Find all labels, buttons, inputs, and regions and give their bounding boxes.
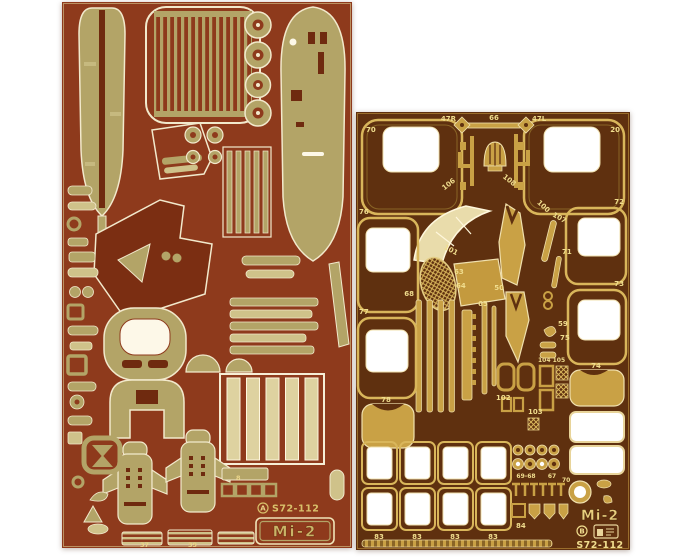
part-number-label: 64 bbox=[456, 282, 466, 290]
strip-bundle-part bbox=[223, 147, 271, 237]
part-number-label: 84 bbox=[516, 522, 526, 530]
part-number-label: 65 bbox=[478, 300, 488, 308]
brand-mark: B bbox=[579, 528, 584, 536]
part-number-label: 67 bbox=[548, 473, 556, 480]
cowl-ring-part bbox=[104, 308, 186, 380]
part-number-label: 75 bbox=[560, 334, 570, 342]
part-number-label: 103 bbox=[528, 408, 543, 416]
part-number-label: 70 bbox=[562, 477, 570, 484]
part-number-label: 37 bbox=[140, 541, 149, 548]
product-photo: 8 37 39 A S72-112 Mi-2 bbox=[0, 0, 700, 560]
part-number-label: 39 bbox=[188, 541, 198, 548]
model-name-plate: Mi-2 bbox=[256, 518, 334, 544]
part-number-label: 70 bbox=[366, 126, 376, 134]
part-number-label: 8 bbox=[236, 474, 241, 482]
part-number-label: 71 bbox=[562, 248, 572, 256]
right-fret: 70 47R 66 47L 20 106 108 100 107 76 72 1… bbox=[356, 112, 630, 550]
part-number-label: 104 105 bbox=[538, 357, 565, 364]
fret-code-label: S72-112 bbox=[272, 504, 319, 515]
part-number-label: 83 bbox=[374, 533, 384, 541]
part-number-label: 47L bbox=[532, 115, 547, 123]
part-number-label: 68 bbox=[404, 290, 414, 298]
part-number-label: 47R bbox=[441, 115, 457, 123]
part-number-label: 50 bbox=[494, 284, 504, 292]
part-number-label: 66 bbox=[489, 114, 499, 122]
part-number-label: 63 bbox=[454, 268, 464, 276]
brand-mark: A bbox=[260, 505, 266, 513]
left-fret: 8 37 39 A S72-112 Mi-2 bbox=[62, 2, 352, 548]
part-number-label: 74 bbox=[591, 362, 601, 370]
part-number-label: 83 bbox=[412, 533, 422, 541]
part-number-label: 73 bbox=[614, 280, 624, 288]
part-number-label: 59 bbox=[558, 320, 568, 328]
fret-code-label: S72-112 bbox=[576, 540, 623, 550]
window-cutout bbox=[570, 412, 624, 474]
part-number-label: 102 bbox=[496, 394, 511, 402]
part-number-label: 83 bbox=[450, 533, 460, 541]
part-number-label: 20 bbox=[610, 126, 620, 134]
part-number-label: 83 bbox=[488, 533, 498, 541]
part-number-label: 76 bbox=[359, 208, 369, 216]
part-number-label: 77 bbox=[359, 308, 369, 316]
part-number-label: 78 bbox=[381, 396, 391, 404]
long-strip-part bbox=[362, 540, 552, 547]
part-number-label: 72 bbox=[614, 198, 624, 206]
fuselage-panel-part bbox=[281, 7, 345, 261]
radiator-grille-part bbox=[146, 7, 260, 123]
model-name-label: Mi-2 bbox=[581, 508, 619, 524]
model-name-label: Mi-2 bbox=[273, 523, 318, 541]
door-panel-part bbox=[570, 370, 624, 406]
louver-panel-part bbox=[220, 298, 324, 464]
part-number-label: 69-68 bbox=[516, 473, 535, 480]
